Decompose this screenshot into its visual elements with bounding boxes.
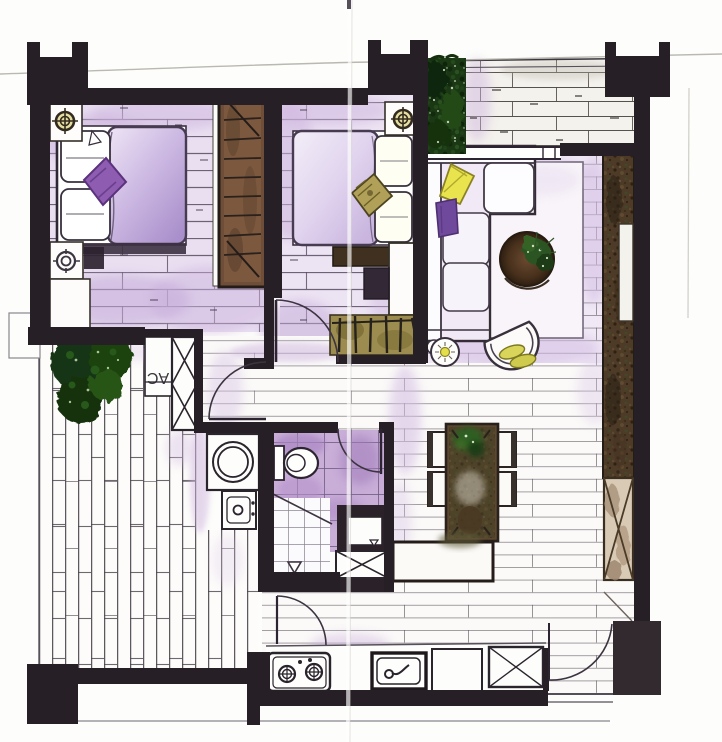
svg-text:AC: AC [147, 369, 169, 386]
